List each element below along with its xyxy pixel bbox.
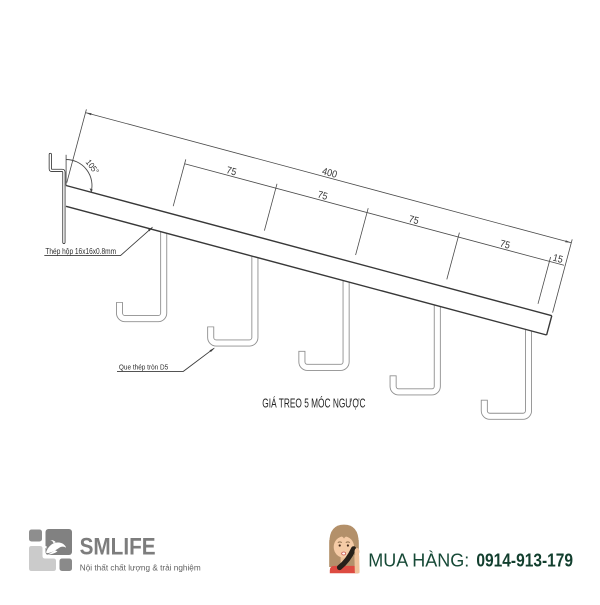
svg-text:SMLIFE: SMLIFE [80,533,156,560]
svg-text:Thép hộp 16x16x0.8mm: Thép hộp 16x16x0.8mm [45,246,116,256]
svg-text:GIÁ TREO 5 MÓC NGƯỢC: GIÁ TREO 5 MÓC NGƯỢC [262,396,365,411]
svg-text:Que thép tròn D5: Que thép tròn D5 [119,364,169,371]
svg-text:MUA HÀNG:: MUA HÀNG: [368,551,469,571]
svg-text:0914-913-179: 0914-913-179 [476,551,573,571]
svg-text:Nội thất chất lượng & trải ngh: Nội thất chất lượng & trải nghiệm [80,562,201,572]
